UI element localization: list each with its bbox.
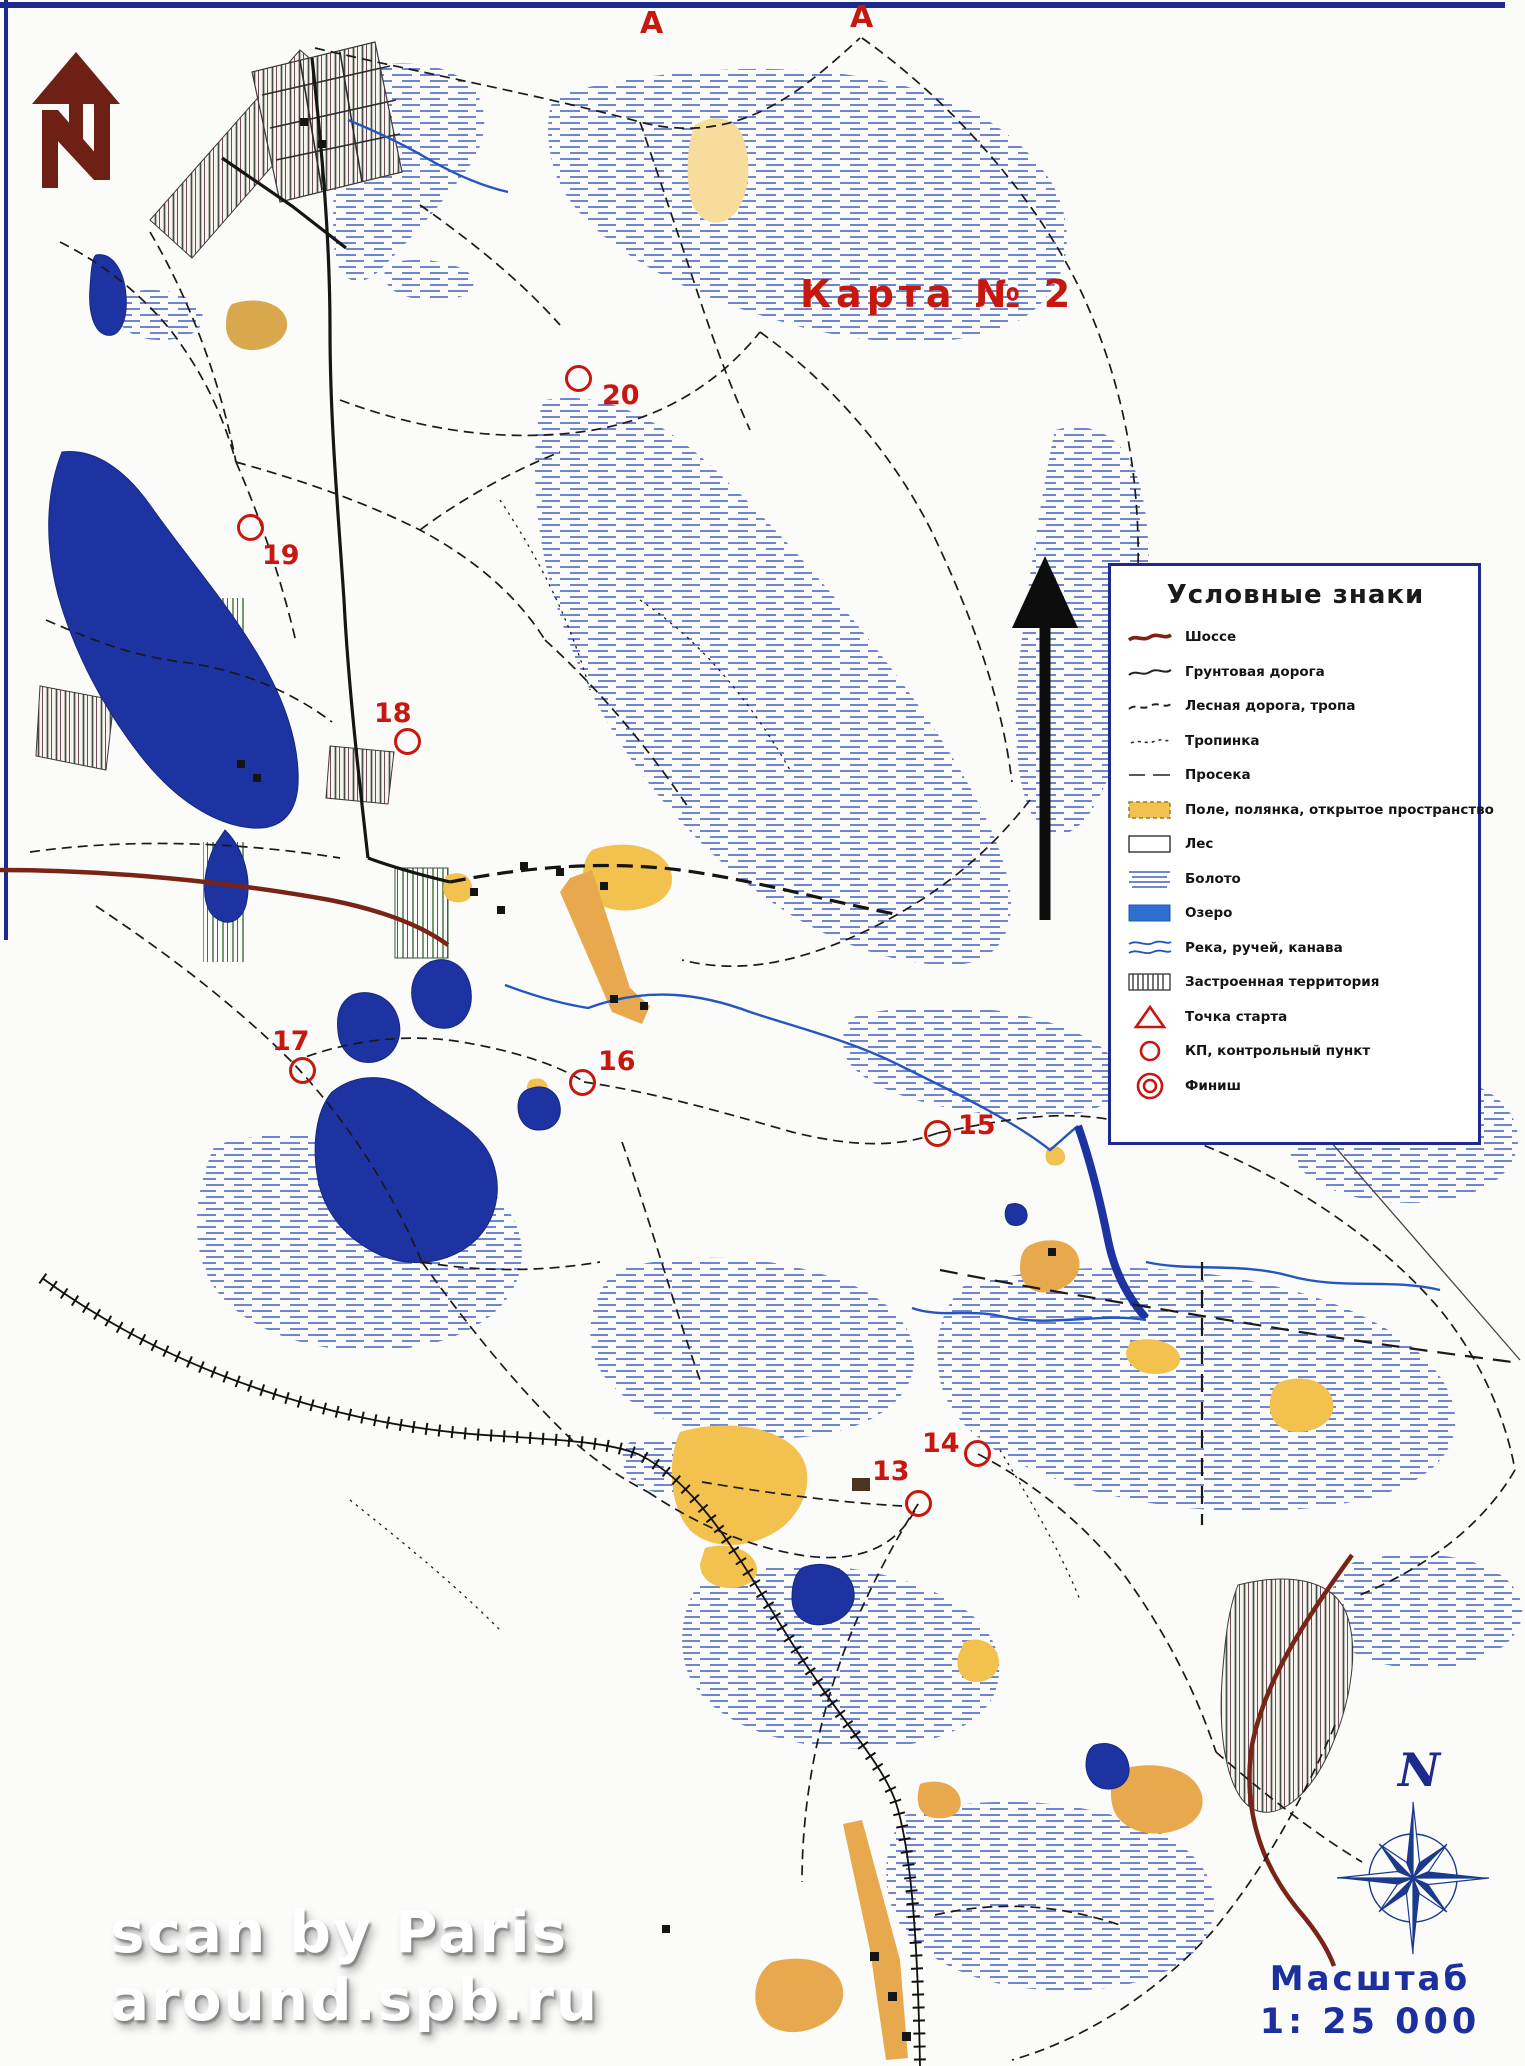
legend-title: Условные знаки — [1123, 580, 1468, 610]
legend-item-label: Застроенная территория — [1185, 974, 1379, 990]
forest-road-symbol-icon — [1123, 695, 1177, 717]
north-arrow-icon — [1000, 550, 1090, 934]
compass-star-icon — [1337, 1802, 1489, 1954]
control-point-circle-13 — [905, 1490, 932, 1517]
control-point-label: 17 — [272, 1028, 310, 1055]
highway-symbol-icon — [1123, 626, 1177, 648]
legend-item: Финиш — [1123, 1069, 1468, 1104]
watermark: scan by Paris around.spb.ru — [110, 1898, 599, 2035]
legend-item: КП, контрольный пункт — [1123, 1034, 1468, 1069]
legend-item-label: Тропинка — [1185, 733, 1260, 749]
legend-item: Точка старта — [1123, 1000, 1468, 1035]
legend-item-label: Точка старта — [1185, 1009, 1287, 1025]
legend-item-label: Просека — [1185, 767, 1251, 783]
map-title: Карта № 2 — [800, 272, 1075, 316]
legend-item: Болото — [1123, 862, 1468, 897]
compass-rose: N — [1323, 1738, 1503, 1987]
control-point-label: 20 — [602, 382, 640, 409]
club-logo — [30, 48, 125, 197]
legend-item-label: Озеро — [1185, 905, 1232, 921]
control-symbol-icon — [1123, 1038, 1177, 1064]
cutting-symbol-icon — [1123, 764, 1177, 786]
control-point-circle-19 — [237, 514, 264, 541]
legend-item-label: Поле, полянка, открытое пространство — [1185, 802, 1494, 818]
corridor-label: А — [850, 0, 873, 35]
control-point-circle-15 — [924, 1120, 951, 1147]
legend-item-label: Лес — [1185, 836, 1213, 852]
footpath-symbol-icon — [1123, 730, 1177, 752]
control-point-circle-17 — [289, 1057, 316, 1084]
legend-item-label: КП, контрольный пункт — [1185, 1043, 1370, 1059]
control-point-circle-14 — [964, 1440, 991, 1467]
legend-item: Грунтовая дорога — [1123, 655, 1468, 690]
legend-item-label: Болото — [1185, 871, 1241, 887]
swamp-symbol-icon — [1123, 868, 1177, 890]
legend-item: Озеро — [1123, 896, 1468, 931]
forest-symbol-icon — [1123, 833, 1177, 855]
legend-item: Поле, полянка, открытое пространство — [1123, 793, 1468, 828]
control-point-label: 15 — [958, 1112, 996, 1139]
field-symbol-icon — [1123, 799, 1177, 821]
control-point-circle-16 — [569, 1069, 596, 1096]
lake-symbol-icon — [1123, 902, 1177, 924]
control-point-label: 13 — [872, 1458, 910, 1485]
finish-symbol-icon — [1123, 1071, 1177, 1101]
control-point-circle-18 — [394, 728, 421, 755]
legend-item: Река, ручей, канава — [1123, 931, 1468, 966]
legend-item: Тропинка — [1123, 724, 1468, 759]
control-point-label: 18 — [374, 700, 412, 727]
legend-item-label: Грунтовая дорога — [1185, 664, 1325, 680]
legend-item-label: Лесная дорога, тропа — [1185, 698, 1355, 714]
start-symbol-icon — [1123, 1004, 1177, 1030]
corridor-label: А — [640, 6, 663, 41]
watermark-line2: around.spb.ru — [110, 1966, 599, 2034]
legend-item: Лес — [1123, 827, 1468, 862]
control-point-label: 19 — [262, 542, 300, 569]
legend-item-label: Финиш — [1185, 1078, 1241, 1094]
scale-label: Масштаб — [1235, 1958, 1505, 2001]
scale-value: 1: 25 000 — [1235, 2001, 1505, 2045]
control-point-label: 14 — [922, 1430, 960, 1457]
control-point-circle-20 — [565, 365, 592, 392]
dirt-road-symbol-icon — [1123, 661, 1177, 683]
compass-north-label: N — [1396, 1743, 1442, 1797]
scale-block: Масштаб 1: 25 000 — [1235, 1958, 1505, 2044]
legend-item: Лесная дорога, тропа — [1123, 689, 1468, 724]
legend-panel: Условные знаки ШоссеГрунтовая дорогаЛесн… — [1108, 563, 1481, 1145]
built-up-symbol-icon — [1123, 971, 1177, 993]
river-symbol-icon — [1123, 937, 1177, 959]
legend-item: Застроенная территория — [1123, 965, 1468, 1000]
map-page: Карта № 2 АА 1314151617181920 Условные з… — [0, 0, 1525, 2066]
north-arrow-logo-icon — [30, 48, 125, 193]
control-point-label: 16 — [598, 1048, 636, 1075]
legend-item: Просека — [1123, 758, 1468, 793]
legend-items: ШоссеГрунтовая дорогаЛесная дорога, троп… — [1123, 620, 1468, 1103]
legend-item-label: Шоссе — [1185, 629, 1236, 645]
watermark-line1: scan by Paris — [110, 1898, 599, 1966]
legend-item: Шоссе — [1123, 620, 1468, 655]
legend-item-label: Река, ручей, канава — [1185, 940, 1343, 956]
